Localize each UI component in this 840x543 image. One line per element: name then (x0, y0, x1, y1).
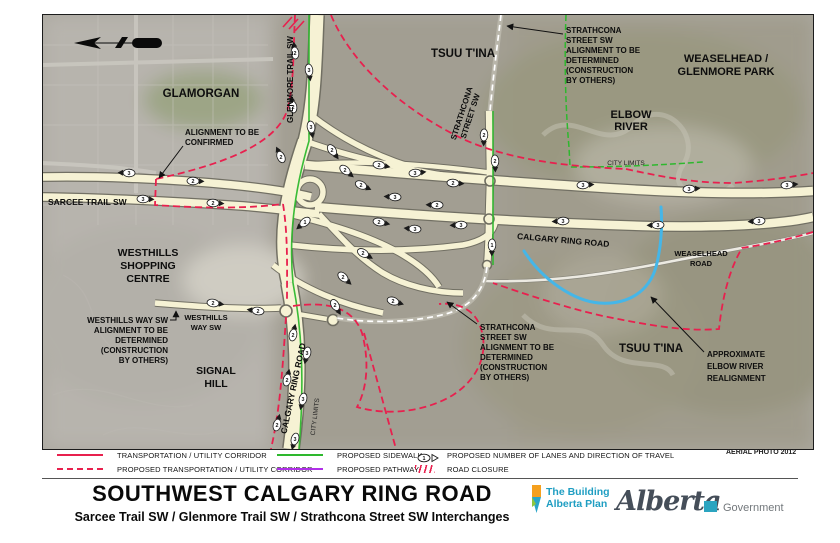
aerial-photo-credit: AERIAL PHOTO 2012 (726, 449, 796, 456)
note-strathcona-bottom-5: (CONSTRUCTION (480, 363, 547, 372)
note-westhills-4: (CONSTRUCTION (101, 346, 168, 355)
svg-text:3: 3 (562, 219, 565, 225)
legend-sidewalk-label: PROPOSED SIDEWALK (337, 451, 423, 460)
svg-text:3: 3 (310, 125, 313, 131)
legend-pathway-label: PROPOSED PATHWAY (337, 465, 419, 474)
svg-text:2: 2 (494, 159, 497, 165)
label-weaselhead-park-2: GLENMORE PARK (678, 66, 775, 78)
note-westhills-5: BY OTHERS) (119, 356, 169, 365)
note-strathcona-top-1: STRATHCONA (566, 26, 622, 35)
svg-text:2: 2 (378, 163, 381, 169)
label-westhills-way: WESTHILLS (184, 313, 227, 322)
svg-text:1: 1 (304, 220, 307, 226)
svg-text:3: 3 (460, 223, 463, 229)
svg-text:2: 2 (342, 275, 345, 281)
svg-text:3: 3 (758, 219, 761, 225)
svg-text:2: 2 (212, 201, 215, 207)
note-strathcona-bottom-3: ALIGNMENT TO BE (480, 343, 555, 352)
legend-lanes-label: PROPOSED NUMBER OF LANES AND DIRECTION O… (447, 451, 674, 460)
note-westhills-1: WESTHILLS WAY SW (87, 316, 168, 325)
legend-sidewalk-line (277, 454, 323, 456)
label-signal-hill-2: HILL (204, 378, 228, 390)
legend-proposed-tuc-line (57, 468, 103, 470)
label-elbow-river-2: RIVER (614, 121, 648, 133)
note-westhills-3: DETERMINED (115, 336, 168, 345)
government-label: Government (723, 502, 784, 514)
svg-text:2: 2 (483, 133, 486, 139)
note-river-2: ELBOW RIVER (707, 362, 764, 371)
building-alberta-pencil-icon (527, 485, 545, 517)
legend-lane-number: 1 (423, 456, 426, 462)
building-alberta-text-1: The Building (546, 486, 610, 498)
note-strathcona-bottom-6: BY OTHERS) (480, 373, 530, 382)
svg-text:3: 3 (142, 197, 145, 203)
svg-text:2: 2 (392, 299, 395, 305)
svg-text:3: 3 (302, 397, 305, 403)
svg-text:2: 2 (344, 168, 347, 174)
label-glamorgan: GLAMORGAN (163, 88, 240, 100)
note-strathcona-top-5: (CONSTRUCTION (566, 66, 633, 75)
footer-divider (42, 478, 798, 479)
title-block: SOUTHWEST CALGARY RING ROAD Sarcee Trail… (42, 481, 542, 524)
svg-text:2: 2 (286, 378, 289, 384)
svg-text:3: 3 (582, 183, 585, 189)
note-strathcona-bottom-1: STRATHCONA (480, 323, 536, 332)
legend-closure-symbol (415, 465, 435, 473)
note-river-3: REALIGNMENT (707, 374, 766, 383)
svg-text:2: 2 (362, 251, 365, 257)
label-westhills-shopping-2: SHOPPING (120, 260, 175, 272)
label-westhills-shopping: WESTHILLS (118, 247, 179, 259)
label-signal-hill: SIGNAL (196, 365, 236, 377)
label-weaselhead-road-2: ROAD (690, 259, 713, 268)
label-sarcee-trail: SARCEE TRAIL SW (48, 197, 128, 207)
svg-text:2: 2 (192, 179, 195, 185)
note-strathcona-top-4: DETERMINED (566, 56, 619, 65)
svg-text:2: 2 (331, 148, 334, 154)
svg-text:3: 3 (688, 187, 691, 193)
legend-tuc-label: TRANSPORTATION / UTILITY CORRIDOR (117, 451, 267, 460)
alberta-logo-square (704, 501, 717, 512)
note-river-1: APPROXIMATE (707, 350, 766, 359)
svg-text:2: 2 (360, 183, 363, 189)
label-westhills-way-2: WAY SW (191, 323, 222, 332)
map-poster: 2323222213232232322333333332212222323232… (0, 0, 840, 543)
note-strathcona-top-3: ALIGNMENT TO BE (566, 46, 641, 55)
label-tsuu-tina-north: TSUU T'INA (431, 48, 495, 60)
svg-text:2: 2 (292, 333, 295, 339)
page-title: SOUTHWEST CALGARY RING ROAD (42, 481, 542, 507)
label-glenmore-trail: GLENMORE TRAIL SW (286, 36, 295, 123)
legend-tuc-line (57, 454, 103, 456)
building-alberta-text-2: Alberta Plan (546, 498, 610, 510)
svg-text:2: 2 (452, 181, 455, 187)
note-strathcona-bottom-2: STREET SW (480, 333, 527, 342)
svg-text:3: 3 (657, 223, 660, 229)
label-westhills-shopping-3: CENTRE (126, 273, 169, 285)
svg-text:3: 3 (394, 195, 397, 201)
svg-text:2: 2 (212, 301, 215, 307)
note-alignment-confirmed-2: CONFIRMED (185, 138, 234, 147)
svg-text:2: 2 (378, 220, 381, 226)
note-strathcona-bottom-4: DETERMINED (480, 353, 533, 362)
svg-text:3: 3 (414, 171, 417, 177)
svg-text:1: 1 (491, 243, 494, 249)
page-subtitle: Sarcee Trail SW / Glenmore Trail SW / St… (42, 510, 542, 524)
note-westhills-2: ALIGNMENT TO BE (94, 326, 169, 335)
svg-text:2: 2 (436, 203, 439, 209)
svg-text:3: 3 (414, 227, 417, 233)
svg-text:2: 2 (334, 303, 337, 309)
svg-text:3: 3 (294, 437, 297, 443)
svg-text:3: 3 (308, 68, 311, 74)
svg-text:2: 2 (257, 309, 260, 315)
svg-text:3: 3 (128, 171, 131, 177)
label-weaselhead-road: WEASELHEAD (674, 249, 728, 258)
note-strathcona-top-6: BY OTHERS) (566, 76, 616, 85)
svg-text:3: 3 (786, 183, 789, 189)
svg-text:2: 2 (280, 155, 283, 161)
label-city-limits-east: CITY LIMITS (607, 160, 645, 167)
map-area: 2323222213232232322333333332212222323232… (42, 14, 814, 450)
legend-closure-label: ROAD CLOSURE (447, 465, 509, 474)
label-weaselhead-park: WEASELHEAD / (684, 53, 768, 65)
aerial-basemap (43, 15, 813, 449)
map-canvas: 2323222213232232322333333332212222323232… (43, 15, 813, 449)
label-elbow-river: ELBOW (611, 109, 653, 121)
legend-pathway-line (277, 468, 323, 470)
note-alignment-confirmed: ALIGNMENT TO BE (185, 128, 260, 137)
note-strathcona-top-2: STREET SW (566, 36, 613, 45)
label-tsuu-tina-south: TSUU T'INA (619, 343, 683, 355)
svg-text:2: 2 (276, 423, 279, 429)
